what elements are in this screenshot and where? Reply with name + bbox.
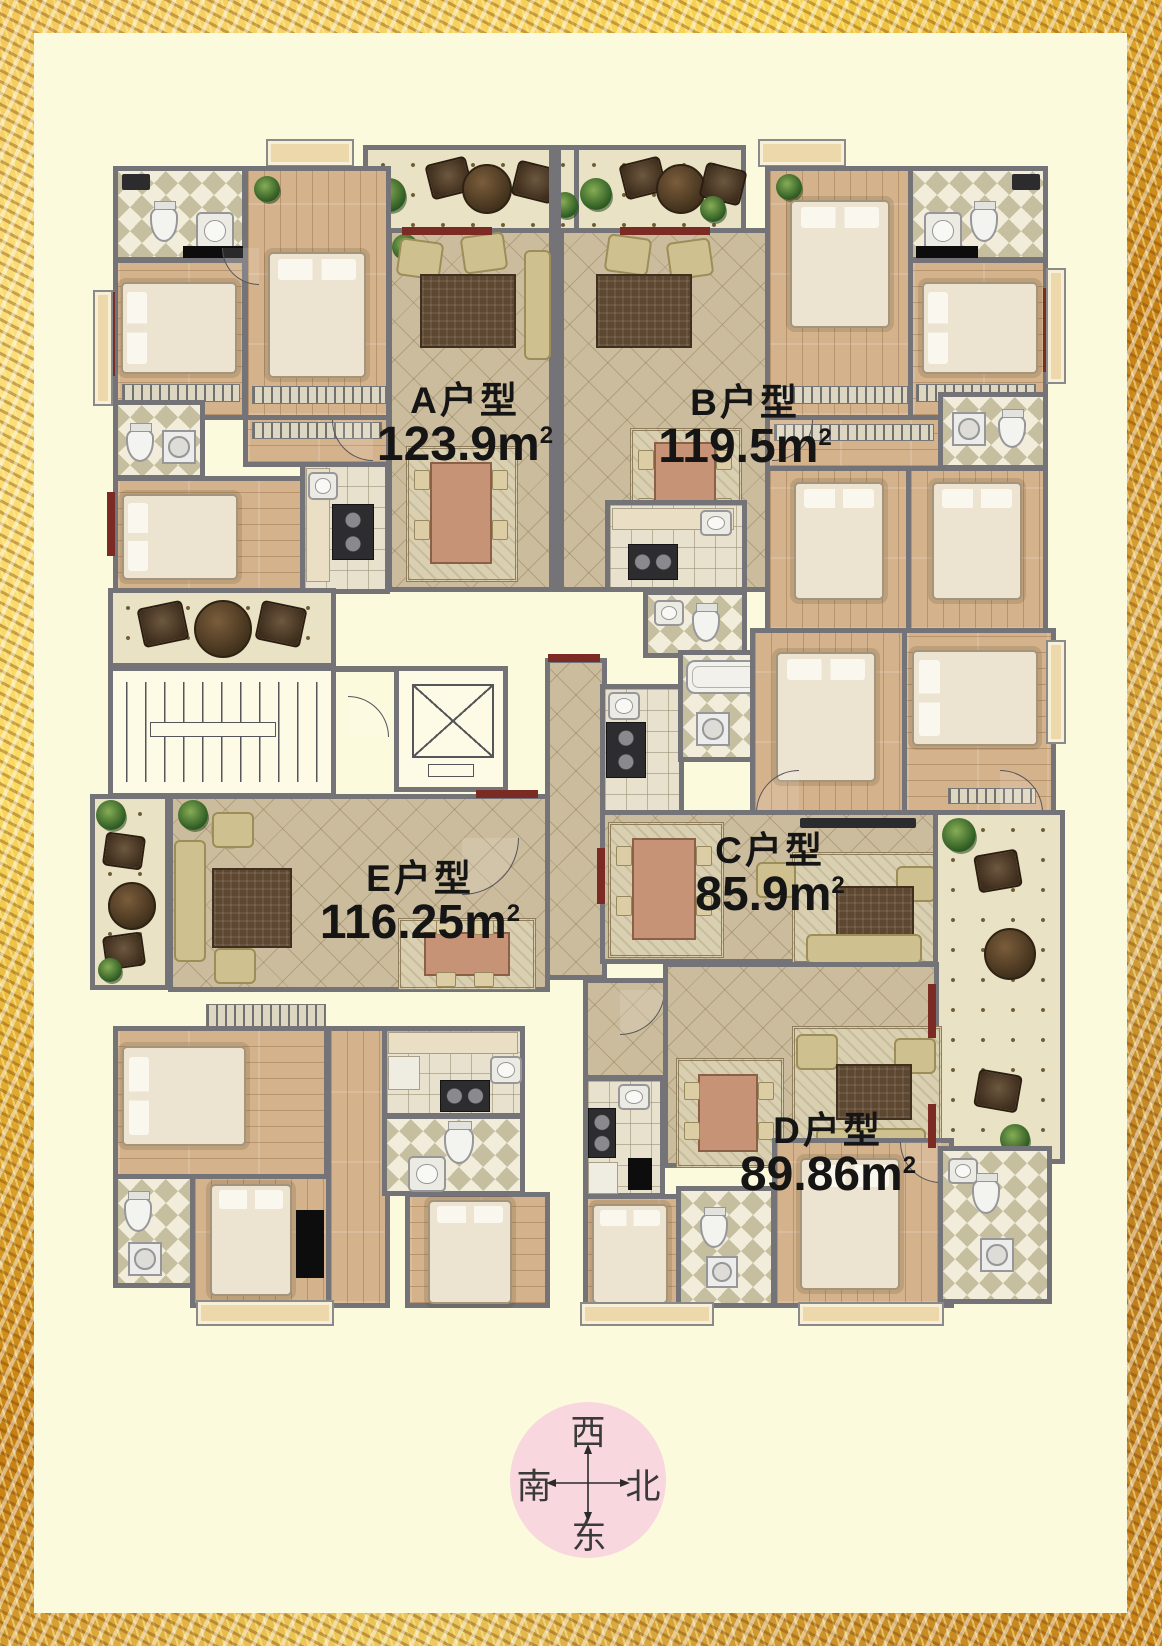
unit-a-label: A户型 123.9m2 — [377, 382, 553, 470]
dining-chair — [616, 846, 632, 866]
armchair — [460, 231, 509, 275]
sink — [608, 692, 640, 720]
plant — [98, 958, 122, 982]
armchair — [604, 233, 653, 277]
sink — [924, 212, 962, 250]
washing-machine — [952, 412, 986, 446]
bed — [794, 482, 884, 600]
stove — [628, 544, 678, 580]
dish-rack — [628, 1158, 652, 1190]
balcony-round-table — [462, 164, 512, 214]
sofa — [524, 250, 551, 360]
plant — [178, 800, 208, 830]
dining-table — [632, 838, 696, 940]
bed — [932, 482, 1022, 600]
window — [620, 227, 710, 235]
dining-chair — [436, 972, 456, 987]
plant — [942, 818, 976, 852]
plant — [700, 196, 726, 222]
floor-plan-poster: A户型 123.9m2 B户型 119.5m2 C户型 85.9m2 D户型 8… — [0, 0, 1162, 1646]
armchair — [212, 812, 254, 848]
stove — [332, 504, 374, 560]
window-box — [758, 139, 846, 167]
window-box — [266, 139, 354, 167]
plant — [254, 176, 280, 202]
compass-rose: 西 南 北 东 — [510, 1402, 666, 1558]
compass-north-label: 北 — [625, 1459, 660, 1510]
dining-chair — [616, 896, 632, 916]
sink — [700, 510, 732, 536]
window — [402, 227, 492, 235]
plant — [96, 800, 126, 830]
balcony-chair — [102, 831, 146, 870]
compass-west-label: 西 — [570, 1405, 605, 1456]
bed — [268, 252, 366, 378]
unit-c-area: 85.9m2 — [695, 870, 844, 920]
bed — [912, 650, 1038, 746]
stair-landing-rail — [150, 722, 276, 737]
unit-c-label: C户型 85.9m2 — [695, 832, 844, 920]
coffee-table-rug — [420, 274, 516, 348]
unit-e-label: E户型 116.25m2 — [320, 860, 520, 948]
balcony-chair — [973, 848, 1023, 893]
central-corridor — [545, 658, 607, 980]
unit-b-name: B户型 — [658, 384, 832, 422]
unit-a-name: A户型 — [377, 382, 553, 420]
unit-c-name: C户型 — [695, 832, 844, 870]
bed — [121, 282, 237, 374]
armchair — [796, 1034, 838, 1070]
dining-chair — [414, 470, 430, 490]
sink — [618, 1084, 650, 1110]
unit-b-label: B户型 119.5m2 — [658, 384, 832, 472]
washing-machine — [706, 1256, 738, 1288]
dining-chair — [474, 972, 494, 987]
sink — [948, 1158, 978, 1184]
stove — [606, 722, 646, 778]
plant — [776, 174, 802, 200]
sink — [308, 472, 338, 500]
kitchen-counter — [388, 1032, 518, 1054]
window — [928, 984, 936, 1038]
window — [597, 848, 605, 904]
balcony-round-table — [656, 164, 706, 214]
bed — [592, 1204, 668, 1304]
window-box — [1046, 640, 1066, 744]
plant — [580, 178, 612, 210]
balcony-round-table — [108, 882, 156, 930]
dining-chair — [492, 470, 508, 490]
compass-east-label: 东 — [571, 1509, 606, 1560]
washing-machine — [162, 430, 196, 464]
sink — [490, 1056, 522, 1084]
window-box — [798, 1302, 944, 1326]
armchair — [214, 948, 256, 984]
door-arc — [348, 696, 389, 737]
dining-table — [430, 462, 492, 564]
unit-d-area: 89.86m2 — [740, 1150, 916, 1200]
sofa — [806, 934, 922, 964]
window — [476, 790, 538, 798]
unit-e-area: 116.25m2 — [320, 898, 520, 948]
bed — [210, 1184, 292, 1296]
dining-chair — [638, 450, 654, 470]
tv-console — [800, 818, 916, 828]
unit-a-area: 123.9m2 — [377, 420, 553, 470]
washing-machine — [980, 1238, 1014, 1272]
coffee-table-rug — [212, 868, 292, 948]
window — [928, 1104, 936, 1148]
washing-machine — [696, 712, 730, 746]
unit-d-name: D户型 — [740, 1112, 916, 1150]
dining-chair — [684, 1122, 700, 1140]
fridge — [388, 1056, 420, 1090]
elevator-car — [412, 684, 494, 758]
window-box — [1046, 268, 1066, 384]
bed — [122, 494, 238, 580]
balcony-chair — [973, 1068, 1023, 1113]
wall-segment — [336, 666, 396, 672]
window-box — [93, 290, 113, 406]
elevator-panel — [428, 764, 474, 777]
window-box — [196, 1300, 334, 1326]
dining-chair — [492, 520, 508, 540]
stove — [588, 1108, 616, 1158]
unit-d-label: D户型 89.86m2 — [740, 1112, 916, 1200]
fridge — [588, 1162, 618, 1194]
door-threshold — [548, 654, 600, 662]
bed — [122, 1046, 246, 1146]
shower-tray — [408, 1156, 446, 1192]
dining-chair — [758, 1082, 774, 1100]
dining-chair — [414, 520, 430, 540]
stove — [440, 1080, 490, 1112]
lobby-round-rug — [194, 600, 252, 658]
bed — [776, 652, 876, 782]
unit-d-bathroom-1 — [676, 1186, 776, 1308]
window-box — [580, 1302, 714, 1326]
unit-b-area: 119.5m2 — [658, 422, 832, 472]
window — [107, 492, 115, 556]
bed — [922, 282, 1038, 374]
bed — [790, 200, 890, 328]
washing-machine — [128, 1242, 162, 1276]
wardrobe — [252, 386, 386, 404]
sink — [196, 212, 234, 250]
compass-south-label: 南 — [516, 1459, 551, 1510]
tv-icon — [1012, 174, 1040, 190]
balcony-round-table — [984, 928, 1036, 980]
dining-chair — [684, 1082, 700, 1100]
sink — [654, 600, 684, 626]
tv-icon — [122, 174, 150, 190]
sofa — [174, 840, 206, 962]
coffee-table — [836, 886, 914, 938]
bed — [428, 1200, 512, 1304]
coffee-table-rug — [596, 274, 692, 348]
wardrobe-black — [296, 1210, 324, 1278]
unit-e-hallway — [326, 1026, 390, 1308]
building-floor-plan: A户型 123.9m2 B户型 119.5m2 C户型 85.9m2 D户型 8… — [0, 0, 1162, 1646]
unit-e-name: E户型 — [320, 860, 520, 898]
